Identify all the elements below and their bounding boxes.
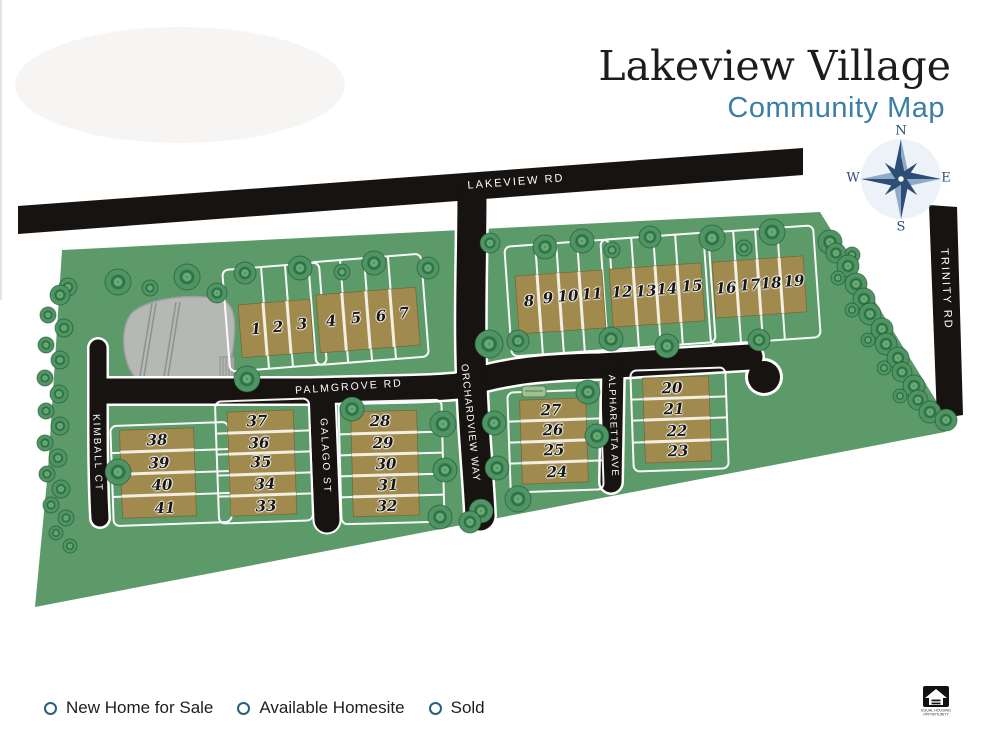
tree-icon — [50, 385, 68, 403]
tree-icon — [482, 411, 506, 435]
lot-22[interactable]: 22 — [666, 422, 687, 441]
tree-icon — [340, 397, 364, 421]
tree-icon — [485, 456, 509, 480]
lot-19[interactable]: 19 — [783, 271, 805, 290]
lot-5[interactable]: 5 — [350, 309, 362, 328]
lot-23[interactable]: 23 — [667, 442, 688, 461]
lot-16[interactable]: 16 — [715, 278, 737, 297]
compass-south-label: S — [897, 220, 906, 235]
legend-sold-icon — [429, 702, 442, 715]
tree-icon — [234, 262, 256, 284]
lot-34[interactable]: 34 — [254, 475, 275, 494]
legend-item-available: Available Homesite — [237, 698, 404, 718]
page-edge — [0, 0, 2, 300]
lot-32[interactable]: 32 — [376, 497, 397, 516]
tree-icon — [699, 225, 725, 251]
tree-icon — [533, 235, 557, 259]
lot-26[interactable]: 26 — [542, 421, 563, 440]
tree-icon — [475, 330, 503, 358]
lot-6[interactable]: 6 — [375, 307, 387, 326]
tree-icon — [480, 233, 500, 253]
tree-icon — [759, 219, 785, 245]
lot-27[interactable]: 27 — [540, 401, 561, 420]
legend-new-home-icon — [44, 702, 57, 715]
tree-icon — [748, 329, 770, 351]
tree-icon — [55, 319, 73, 337]
lot-28[interactable]: 28 — [369, 412, 390, 431]
tree-icon — [505, 486, 531, 512]
tree-icon — [51, 417, 69, 435]
tree-icon — [831, 271, 845, 285]
tree-icon — [49, 449, 67, 467]
lot-24[interactable]: 24 — [546, 463, 567, 482]
legend-item-new-home: New Home for Sale — [44, 698, 213, 718]
legend-new-home-label: New Home for Sale — [66, 698, 213, 718]
lot-38[interactable]: 38 — [146, 431, 167, 450]
tree-icon — [570, 229, 594, 253]
lot-11[interactable]: 11 — [581, 284, 603, 303]
lot-7[interactable]: 7 — [398, 304, 410, 323]
tree-icon — [40, 307, 56, 323]
lot-8[interactable]: 8 — [523, 292, 535, 311]
lot-15[interactable]: 15 — [681, 276, 703, 295]
tree-icon — [433, 458, 457, 482]
compass-west-label: W — [846, 171, 859, 186]
tree-icon — [417, 257, 439, 279]
tree-icon — [37, 435, 53, 451]
lot-20[interactable]: 20 — [661, 379, 682, 398]
lot-41[interactable]: 41 — [154, 499, 175, 518]
tree-icon — [105, 459, 131, 485]
compass-east-label: E — [941, 171, 951, 186]
equal-housing-text-line2: OPPORTUNITY — [923, 713, 949, 717]
tree-icon — [507, 330, 529, 352]
lot-1[interactable]: 1 — [250, 320, 262, 339]
tree-icon — [639, 226, 661, 248]
lot-13[interactable]: 13 — [635, 281, 657, 300]
community-map-page: EQUAL HOUSING OPPORTUNITY Lakeview Villa… — [0, 0, 991, 743]
legend-available-icon — [237, 702, 250, 715]
tree-icon — [58, 510, 74, 526]
tree-icon — [861, 333, 875, 347]
tree-icon — [51, 351, 69, 369]
lot-39[interactable]: 39 — [148, 454, 169, 473]
lot-33[interactable]: 33 — [255, 497, 276, 516]
lot-3[interactable]: 3 — [296, 315, 308, 334]
amenity-icon — [522, 386, 546, 397]
tree-icon — [459, 511, 481, 533]
lot-17[interactable]: 17 — [739, 275, 761, 294]
tree-icon — [736, 240, 752, 256]
lot-31[interactable]: 31 — [377, 476, 398, 495]
tree-icon — [599, 327, 623, 351]
compass-north-label: N — [895, 124, 906, 139]
tree-icon — [39, 466, 55, 482]
lot-29[interactable]: 29 — [372, 434, 393, 453]
tree-icon — [50, 285, 70, 305]
tree-icon — [38, 403, 54, 419]
map-legend: New Home for Sale Available Homesite Sol… — [44, 698, 485, 718]
lot-10[interactable]: 10 — [557, 286, 579, 305]
tree-icon — [935, 409, 957, 431]
tree-icon — [428, 505, 452, 529]
page-subtitle: Community Map — [727, 92, 945, 125]
lot-12[interactable]: 12 — [611, 282, 633, 301]
lot-35[interactable]: 35 — [250, 453, 271, 472]
compass-rose-icon — [861, 139, 941, 219]
legend-sold-label: Sold — [451, 698, 485, 718]
tree-icon — [576, 380, 600, 404]
lot-21[interactable]: 21 — [663, 400, 684, 419]
equal-housing-icon: EQUAL HOUSING OPPORTUNITY — [921, 686, 951, 717]
tree-icon — [430, 411, 456, 437]
tree-icon — [845, 303, 859, 317]
lot-40[interactable]: 40 — [151, 476, 172, 495]
legend-item-sold: Sold — [429, 698, 485, 718]
tree-icon — [362, 251, 386, 275]
tree-icon — [105, 269, 131, 295]
lot-18[interactable]: 18 — [760, 273, 782, 292]
lot-14[interactable]: 14 — [656, 279, 678, 298]
tree-icon — [174, 264, 200, 290]
tree-icon — [893, 389, 907, 403]
lot-30[interactable]: 30 — [375, 455, 396, 474]
lot-25[interactable]: 25 — [543, 441, 564, 460]
lot-4[interactable]: 4 — [325, 312, 337, 331]
tree-icon — [234, 366, 260, 392]
tree-icon — [207, 283, 227, 303]
tree-icon — [43, 497, 59, 513]
tree-icon — [52, 480, 70, 498]
lot-37[interactable]: 37 — [246, 412, 267, 431]
tree-icon — [63, 539, 77, 553]
tree-icon — [38, 337, 54, 353]
lot-36[interactable]: 36 — [248, 434, 269, 453]
land-parcel — [35, 212, 948, 607]
cul-de-sac — [748, 361, 780, 393]
tree-icon — [37, 370, 53, 386]
faded-logo-area — [15, 27, 345, 143]
tree-icon — [288, 256, 312, 280]
tree-icon — [142, 280, 158, 296]
tree-icon — [604, 242, 620, 258]
tree-icon — [585, 424, 609, 448]
lot-9[interactable]: 9 — [542, 289, 554, 308]
legend-available-label: Available Homesite — [259, 698, 404, 718]
lot-2[interactable]: 2 — [272, 318, 284, 337]
page-title: Lakeview Village — [598, 42, 951, 90]
tree-icon — [334, 264, 350, 280]
tree-icon — [655, 334, 679, 358]
tree-icon — [877, 361, 891, 375]
tree-icon — [49, 526, 63, 540]
